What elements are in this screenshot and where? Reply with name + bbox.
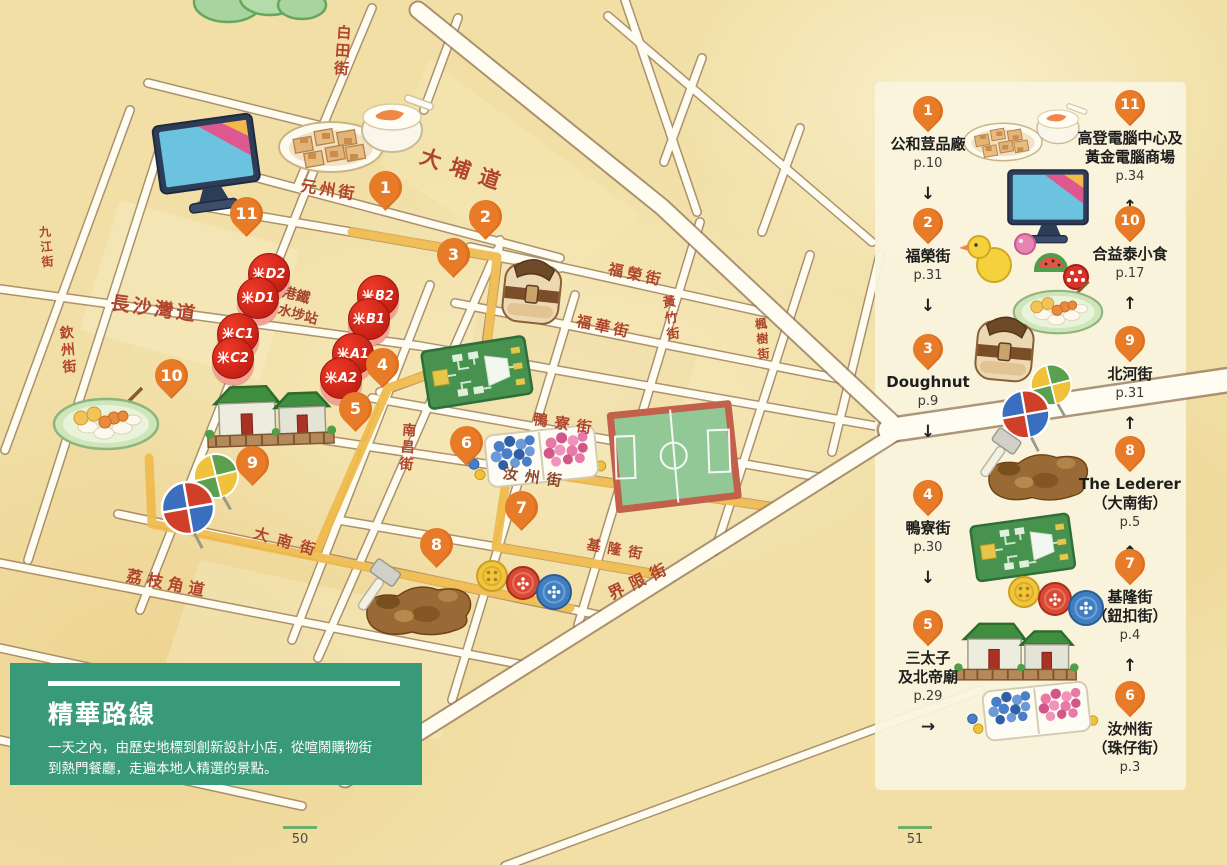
map-pin-9: 9 [236,446,269,479]
legend-item-3: 3 Doughnut p.9 ↓ [853,334,1003,442]
map-pin-4: 4 [366,348,399,381]
mtr-logo-icon: 米 [325,372,337,384]
map-pin-7: 7 [505,491,538,524]
legend-name: 高登電腦中心及 [1055,129,1205,148]
book-page: 白田街 大埔道 元州街 九江街 長沙灣道 欽州街 福榮街 福華街 黃竹街 楓樹街… [0,0,1227,865]
legend-item-7: 7 基隆街 （鈕扣街） p.4 ↑ [1055,549,1205,676]
mtr-exit-c2: 米C2 [212,337,254,379]
legend-page-ref: p.5 [1055,515,1205,530]
legend-pin-4: 4 [913,480,943,510]
legend-item-9: 9 北河街 p.31 ↑ [1055,326,1205,434]
legend-item-1: 1 公和荳品廠 p.10 ↓ [853,96,1003,204]
legend-name: 基隆街 [1055,588,1205,607]
up-arrow-icon: ↑ [1055,656,1205,676]
legend-pin-10: 10 [1115,206,1145,236]
map-pin-1: 1 [369,171,402,204]
street-label-kiu-kiang-street: 九江街 [38,225,54,271]
legend-pin-9: 9 [1115,326,1145,356]
legend-name: The Lederer [1055,475,1205,494]
map-pin-2: 2 [469,200,502,233]
street-label-nam-cheong-street: 南昌街 [398,422,416,474]
map-pin-6: 6 [450,426,483,459]
legend-name: 公和荳品廠 [853,135,1003,154]
legend-page-ref: p.31 [853,268,1003,283]
legend-page-ref: p.29 [853,689,1003,704]
legend-page-ref: p.31 [1055,386,1205,401]
legend-pin-1: 1 [913,96,943,126]
legend-pin-11: 11 [1115,90,1145,120]
mtr-logo-icon: 米 [217,352,229,364]
legend-name: 三太子 [853,649,1003,668]
route-title: 精華路線 [48,695,422,731]
map-pin-11: 11 [230,197,263,230]
down-arrow-icon: ↓ [853,184,1003,204]
legend-name: 鴨寮街 [853,519,1003,538]
legend-name: 北河街 [1055,365,1205,384]
legend-pin-6: 6 [1115,681,1145,711]
right-arrow-icon: → [853,717,1003,737]
legend-item-8: 8 The Lederer （大南街） p.5 ↑ [1055,436,1205,563]
legend-item-2: 2 福榮街 p.31 ↓ [853,208,1003,316]
legend-name-line2: （大南街） [1055,494,1205,513]
legend-name-line2: （珠仔街） [1055,739,1205,758]
legend-item-10: 10 合益泰小食 p.17 ↑ [1055,206,1205,314]
legend-page-ref: p.10 [853,156,1003,171]
legend-name: 合益泰小食 [1055,245,1205,264]
up-arrow-icon: ↑ [1055,294,1205,314]
legend-name-line2: 黃金電腦商場 [1055,148,1205,167]
legend-pin-5: 5 [913,610,943,640]
legend-name: Doughnut [853,373,1003,392]
legend-item-4: 4 鴨寮街 p.30 ↓ [853,480,1003,588]
route-description: 一天之內，由歷史地標到創新設計小店，從喧鬧購物街到熱門餐廳，走遍本地人精選的景點… [48,738,384,780]
legend-page-ref: p.3 [1055,760,1205,775]
down-arrow-icon: ↓ [853,568,1003,588]
legend-pin-8: 8 [1115,436,1145,466]
legend-item-6: 6 汝州街 （珠仔街） p.3 [1055,681,1205,775]
info-box-accent-bar [48,681,400,686]
up-arrow-icon: ↑ [1055,414,1205,434]
mtr-logo-icon: 米 [242,292,254,304]
legend-page-ref: p.30 [853,540,1003,555]
map-pin-5: 5 [339,392,372,425]
street-label-pak-tin-street: 白田街 [332,24,351,79]
legend-page-ref: p.9 [853,394,1003,409]
page-number-rule [898,826,932,829]
legend-page-ref: p.17 [1055,266,1205,281]
legend-page-ref: p.4 [1055,628,1205,643]
street-label-yen-chow-street: 欽州街 [58,325,76,377]
legend-name: 汝州街 [1055,720,1205,739]
page-number-rule [283,826,317,829]
map-pin-8: 8 [420,528,453,561]
route-info-box: 精華路線 一天之內，由歷史地標到創新設計小店，從喧鬧購物街到熱門餐廳，走遍本地人… [10,663,422,785]
legend-name-line2: 及北帝廟 [853,668,1003,687]
page-number-left: 50 [270,826,330,847]
legend-item-11: 11 高登電腦中心及 黃金電腦商場 p.34 ↑ [1055,90,1205,217]
down-arrow-icon: ↓ [853,422,1003,442]
legend-item-5: 5 三太子 及北帝廟 p.29 → [853,610,1003,737]
down-arrow-icon: ↓ [853,296,1003,316]
legend-pin-2: 2 [913,208,943,238]
mtr-logo-icon: 米 [353,313,365,325]
page-number-right: 51 [885,826,945,847]
map-pin-10: 10 [155,359,188,392]
legend-page-ref: p.34 [1055,169,1205,184]
street-label-maple-street: 楓樹街 [754,317,770,363]
legend-pin-3: 3 [913,334,943,364]
legend-name: 福榮街 [853,247,1003,266]
legend-name-line2: （鈕扣街） [1055,607,1205,626]
legend-pin-7: 7 [1115,549,1145,579]
map-pin-3: 3 [437,238,470,271]
